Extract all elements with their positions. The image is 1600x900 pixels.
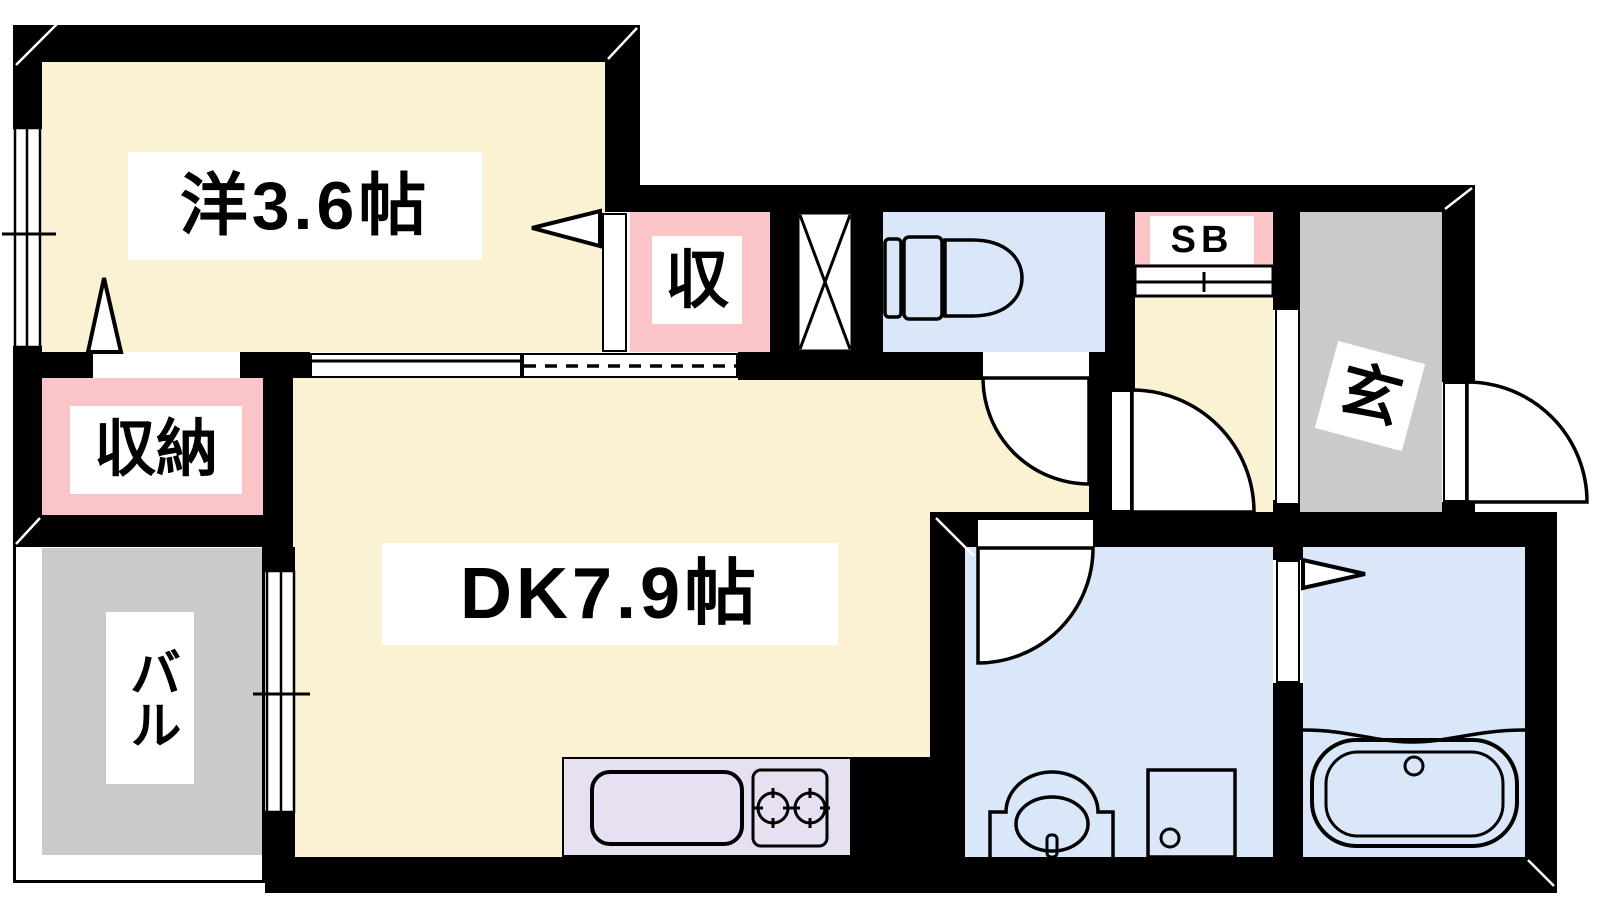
shoe-box-label: SB bbox=[1150, 216, 1254, 264]
wall bbox=[1273, 683, 1303, 857]
western-room-window bbox=[13, 127, 42, 348]
dk-floor-upper bbox=[293, 378, 1089, 512]
pipe-space-x bbox=[800, 215, 850, 349]
toilet-room-floor bbox=[883, 212, 1105, 352]
dk-label: DK7.9帖 bbox=[382, 543, 838, 645]
entrance-door-arc bbox=[1467, 382, 1587, 502]
wall bbox=[13, 352, 93, 378]
toilet-door-opening bbox=[983, 354, 1089, 378]
wall bbox=[1525, 547, 1557, 890]
wall bbox=[13, 25, 42, 127]
wall bbox=[240, 352, 310, 378]
floor-plan: 洋3.6帖 DK7.9帖 収 収納 バル SB 玄 bbox=[0, 0, 1600, 900]
entrance-step-strip bbox=[1275, 310, 1300, 503]
wall bbox=[265, 857, 1557, 893]
storage-opening bbox=[93, 354, 240, 376]
pipe-space-x bbox=[800, 215, 850, 349]
washroom-floor bbox=[965, 547, 1273, 857]
closet-door-panel bbox=[602, 213, 627, 352]
sliding-door-panel bbox=[310, 353, 522, 378]
hallway-floor bbox=[1135, 297, 1273, 512]
wall bbox=[1089, 352, 1135, 390]
wall bbox=[630, 185, 1475, 212]
wall bbox=[770, 212, 797, 352]
wall bbox=[265, 547, 295, 570]
wall bbox=[13, 25, 612, 62]
wall bbox=[13, 515, 293, 547]
wall bbox=[738, 352, 983, 380]
wall bbox=[1273, 212, 1300, 310]
wall bbox=[605, 25, 640, 212]
wall bbox=[853, 212, 883, 352]
shoe-box-icon bbox=[1135, 266, 1273, 296]
wall bbox=[1089, 390, 1110, 512]
washroom-door-opening bbox=[978, 520, 1093, 547]
wall bbox=[1442, 185, 1475, 382]
bathroom-door-panel bbox=[1276, 560, 1300, 683]
closet-label: 収 bbox=[652, 236, 742, 324]
hallway-door-panel bbox=[1110, 390, 1132, 512]
western-room-label: 洋3.6帖 bbox=[128, 152, 482, 260]
pipe-space-box bbox=[798, 213, 852, 351]
entrance-door-panel bbox=[1443, 382, 1467, 502]
sliding-door-panel bbox=[522, 353, 738, 378]
wall bbox=[265, 813, 295, 857]
balcony-label: バル bbox=[106, 612, 194, 784]
kitchen-counter bbox=[562, 757, 852, 857]
wall bbox=[13, 378, 42, 520]
bathroom-floor bbox=[1303, 547, 1525, 857]
wall bbox=[1273, 547, 1303, 560]
wall bbox=[1105, 212, 1135, 352]
balcony-window bbox=[265, 570, 295, 813]
storage-label: 収納 bbox=[70, 406, 242, 494]
